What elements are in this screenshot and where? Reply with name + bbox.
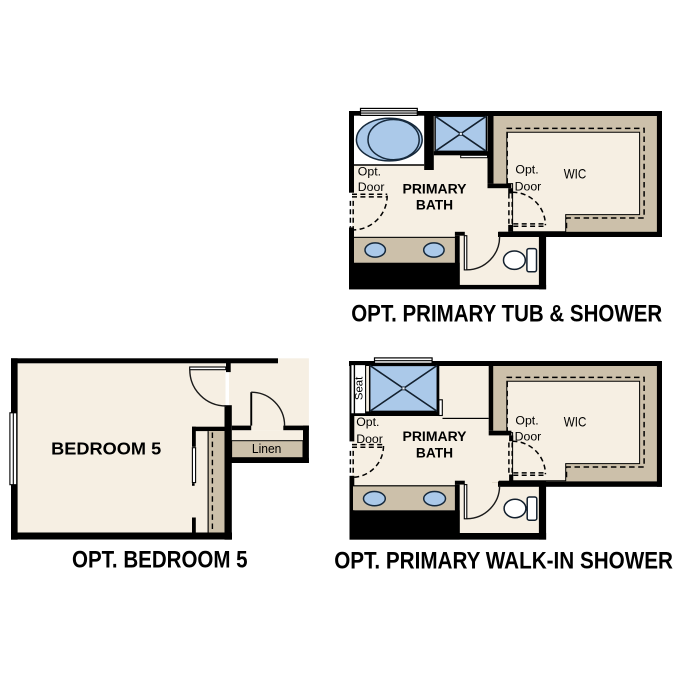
svg-text:WIC: WIC (564, 167, 587, 182)
svg-text:BEDROOM 5: BEDROOM 5 (51, 439, 161, 459)
svg-text:Door: Door (515, 180, 542, 194)
svg-text:Linen: Linen (252, 442, 282, 456)
svg-text:OPT. PRIMARY WALK-IN SHOWER: OPT. PRIMARY WALK-IN SHOWER (334, 547, 673, 574)
svg-text:Door: Door (358, 180, 385, 194)
svg-text:BATH: BATH (416, 445, 453, 460)
svg-text:Opt.: Opt. (358, 165, 381, 179)
svg-text:OPT. PRIMARY TUB & SHOWER: OPT. PRIMARY TUB & SHOWER (351, 300, 662, 327)
svg-text:Opt.: Opt. (356, 415, 379, 429)
svg-text:WIC: WIC (564, 414, 587, 429)
svg-text:PRIMARY: PRIMARY (403, 429, 467, 444)
svg-text:Opt.: Opt. (515, 414, 538, 428)
svg-text:Opt.: Opt. (515, 163, 538, 177)
svg-text:Seat: Seat (354, 376, 366, 400)
svg-text:BATH: BATH (416, 197, 453, 212)
svg-text:OPT. BEDROOM 5: OPT. BEDROOM 5 (72, 546, 248, 573)
svg-text:Door: Door (356, 432, 383, 446)
svg-text:PRIMARY: PRIMARY (403, 181, 467, 196)
svg-text:Door: Door (515, 429, 542, 443)
